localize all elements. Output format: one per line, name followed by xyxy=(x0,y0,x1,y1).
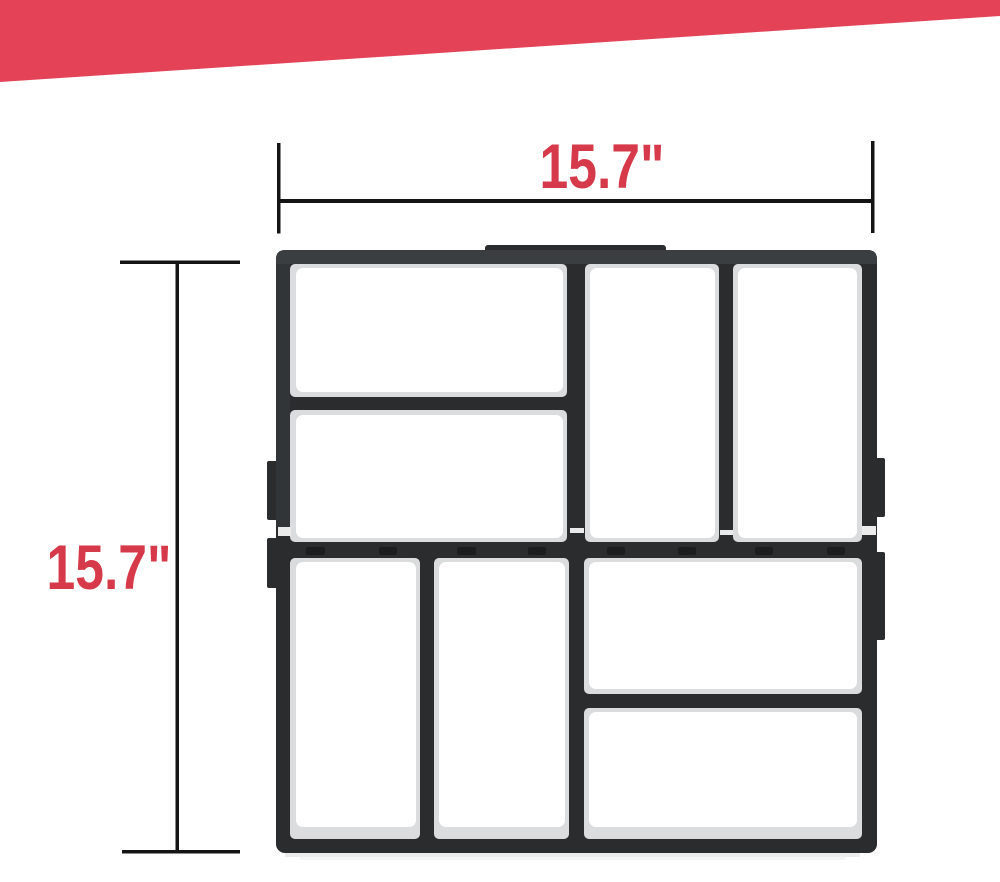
svg-text:15.7": 15.7" xyxy=(539,132,664,202)
svg-text:15.7": 15.7" xyxy=(46,533,171,603)
